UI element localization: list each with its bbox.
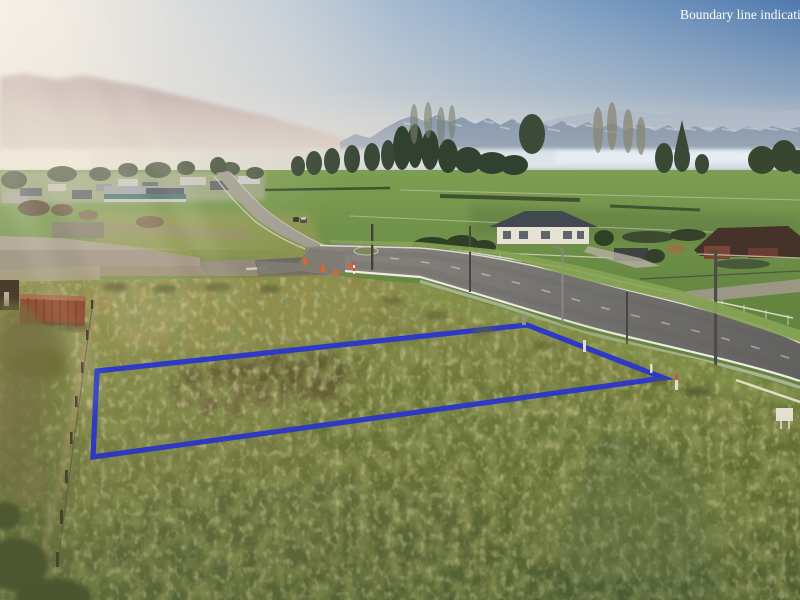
svg-text:Boundary line indicative only: Boundary line indicative only <box>680 7 800 22</box>
